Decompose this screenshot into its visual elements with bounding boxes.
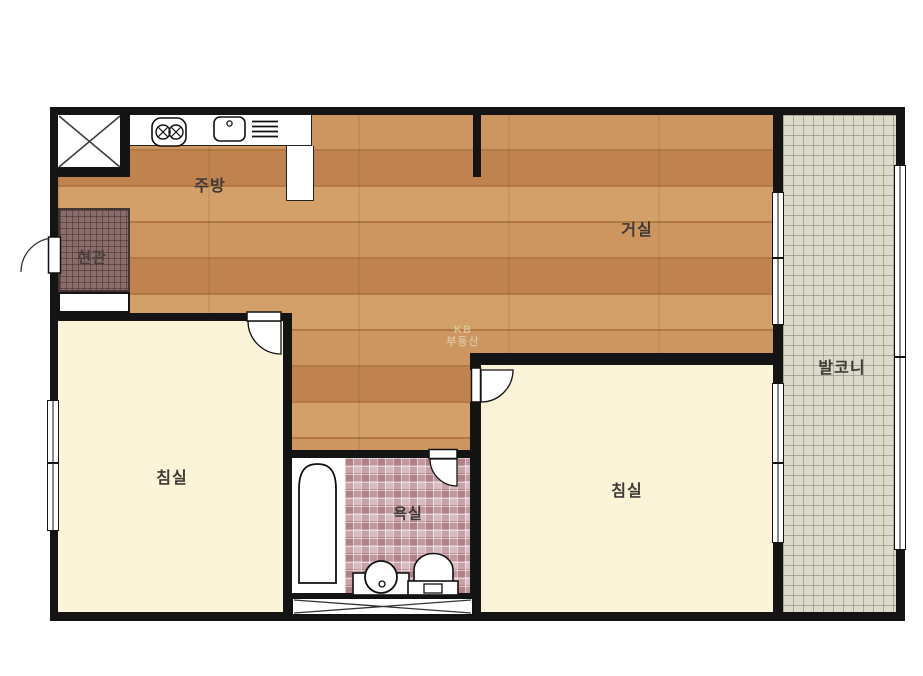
door-leaf [247,312,281,321]
elevator-x-icon [59,116,120,167]
room-label-bedroom-left: 침실 [156,464,187,488]
room-label-entrance: 현관 [77,247,107,268]
bedroom-right-door [472,368,514,402]
room-label-bedroom-right: 침실 [611,477,642,501]
watermark-line1: KB [446,324,479,336]
duct-x-icon [292,598,473,615]
room-label-balcony: 발코니 [818,354,865,378]
sink-icon [214,117,245,141]
room-label-bathroom: 욕실 [393,503,423,524]
room-label-living: 거실 [621,216,652,240]
door-swing-icon [481,370,513,402]
room-label-kitchen: 주방 [194,172,225,196]
toilet-icon [408,554,458,596]
door-leaf [472,368,481,402]
bedroom-left-door [247,312,281,354]
washbasin-icon [353,561,409,595]
door-leaf [49,237,61,273]
floor-plan: KB 부동산 주방 거실 현관 침실 침실 욕실 발코니 [0,0,923,676]
front-door [21,237,61,273]
stove-icon [152,118,186,146]
door-swing-icon [248,321,281,354]
dish-rack-icon [252,122,278,137]
watermark-line2: 부동산 [446,336,479,348]
door-swing-icon [430,459,457,486]
bathroom-door [429,450,457,487]
door-leaf [429,450,457,459]
watermark: KB 부동산 [446,324,479,348]
bathtub-icon [299,464,336,583]
